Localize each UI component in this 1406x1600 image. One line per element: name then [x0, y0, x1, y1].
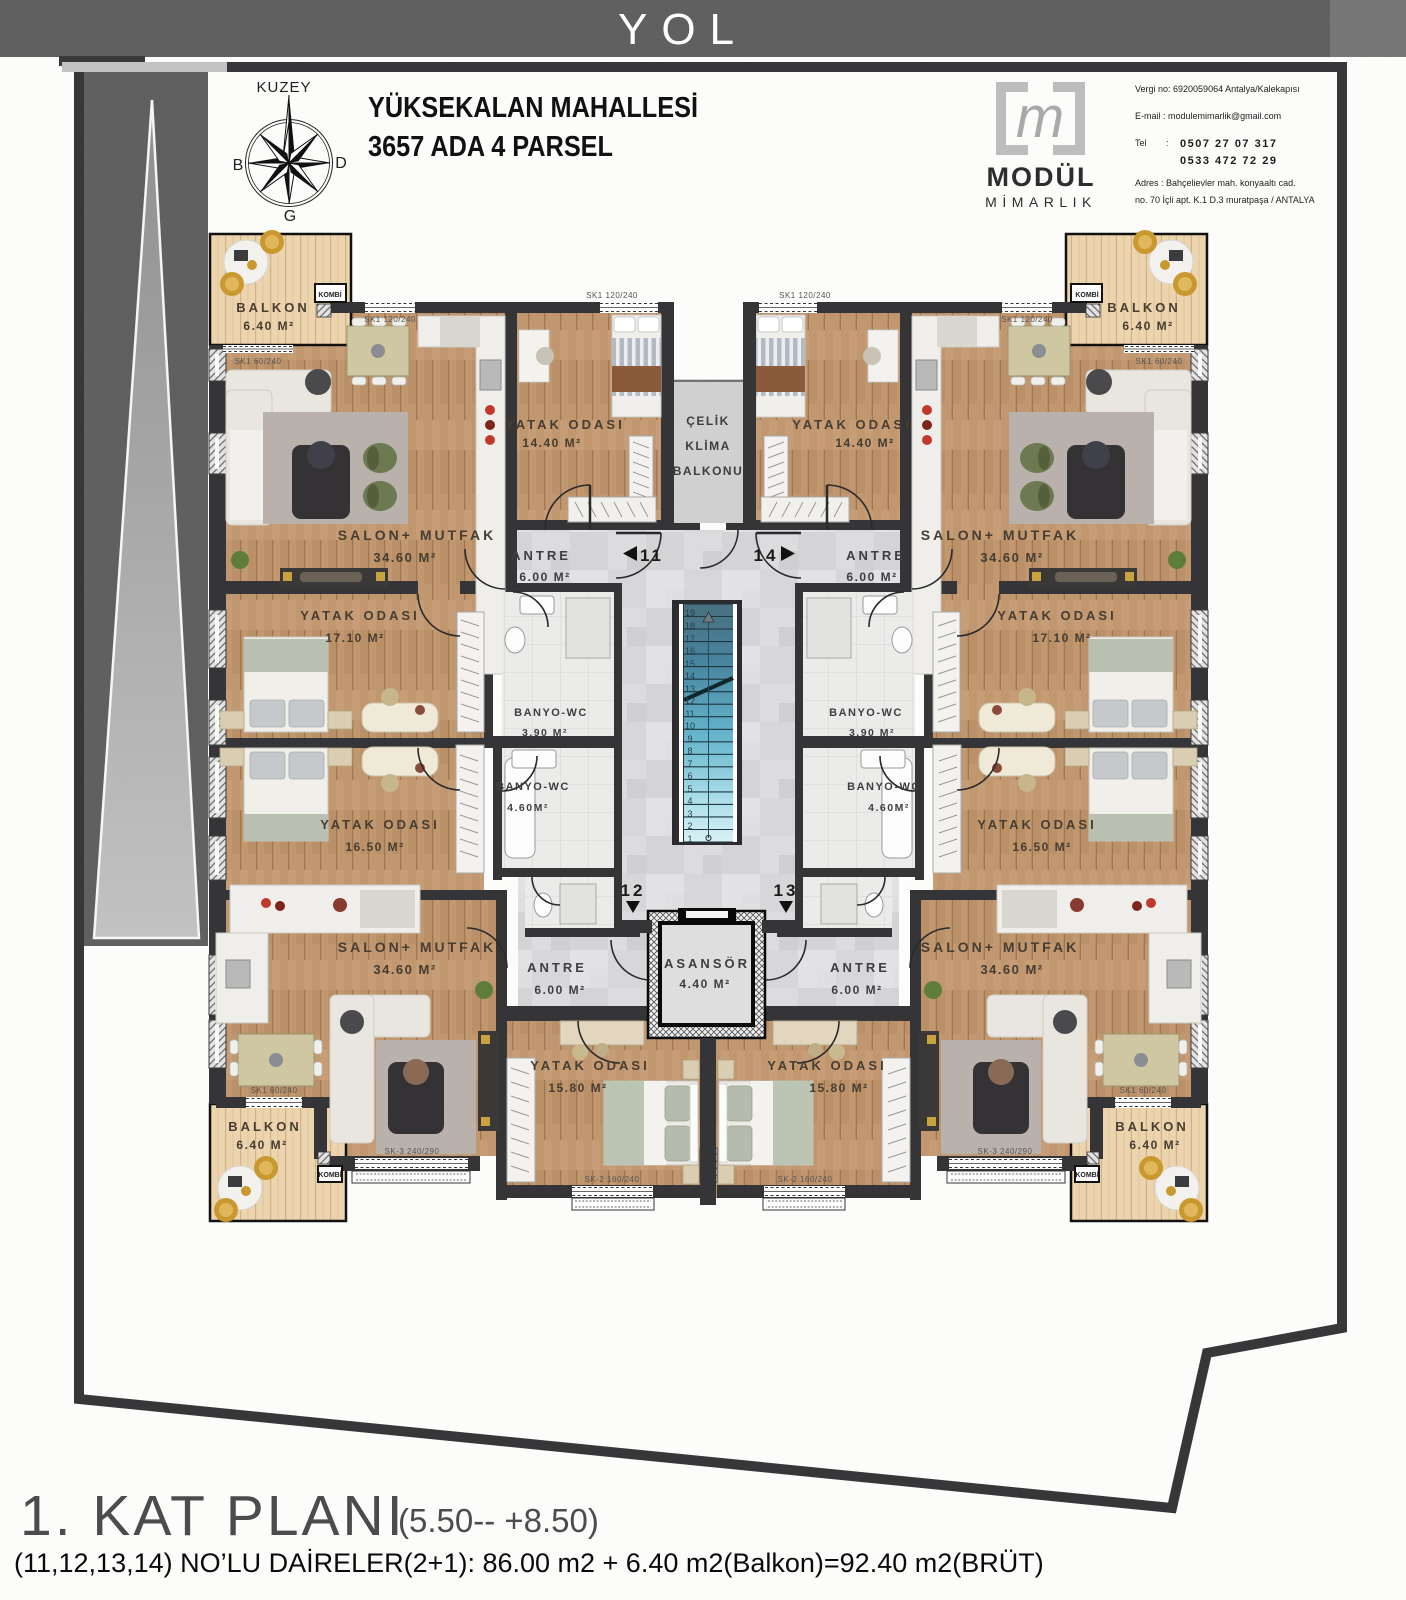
svg-text:34.60 M²: 34.60 M² [373, 962, 436, 977]
svg-text:2: 2 [687, 821, 692, 831]
svg-text:14.40 M²: 14.40 M² [835, 436, 894, 450]
svg-text:9: 9 [687, 734, 692, 744]
svg-text:ANTRE: ANTRE [527, 960, 587, 975]
svg-text:3: 3 [687, 809, 692, 819]
svg-text:KOMBİ: KOMBİ [1075, 1171, 1098, 1179]
svg-text:BANYO-WC: BANYO-WC [514, 707, 588, 719]
svg-text:16: 16 [685, 646, 695, 656]
svg-text:4.60M²: 4.60M² [507, 802, 549, 814]
svg-text:ASANSÖR: ASANSÖR [664, 956, 750, 971]
svg-text:14: 14 [754, 546, 779, 565]
svg-text:BALKON: BALKON [228, 1119, 302, 1134]
svg-text:16.50 M²: 16.50 M² [345, 840, 404, 854]
svg-text:3657 ADA 4 PARSEL: 3657 ADA 4 PARSEL [368, 131, 613, 163]
svg-text:BALKON: BALKON [1115, 1119, 1189, 1134]
svg-text:SALON+ MUTFAK: SALON+ MUTFAK [338, 527, 496, 543]
svg-text:MODÜL: MODÜL [987, 162, 1096, 192]
svg-text:(5.50-- +8.50): (5.50-- +8.50) [398, 1502, 599, 1539]
svg-text:ÇELİK: ÇELİK [686, 413, 730, 428]
svg-text:YATAK ODASI: YATAK ODASI [300, 608, 419, 623]
svg-text:34.60 M²: 34.60 M² [980, 962, 1043, 977]
svg-text:ANTRE: ANTRE [830, 960, 890, 975]
svg-text:SK-2 160/240: SK-2 160/240 [778, 1175, 833, 1184]
svg-text:SK1 60/240: SK1 60/240 [235, 357, 282, 366]
svg-text:7: 7 [687, 759, 692, 769]
svg-text:4.60M²: 4.60M² [868, 802, 910, 814]
svg-text:17.10 M²: 17.10 M² [1032, 631, 1091, 645]
svg-text:SK1 120/240: SK1 120/240 [1001, 315, 1053, 324]
svg-text:10: 10 [685, 721, 695, 731]
svg-text:G: G [284, 208, 296, 225]
svg-text:SK-3 240/290: SK-3 240/290 [978, 1147, 1033, 1156]
svg-text:YATAK ODASI: YATAK ODASI [505, 417, 624, 432]
svg-text:13: 13 [774, 881, 799, 900]
svg-text:KUZEY: KUZEY [256, 79, 311, 96]
svg-text:SK1 120/240: SK1 120/240 [779, 291, 831, 300]
svg-text:SALON+ MUTFAK: SALON+ MUTFAK [338, 939, 496, 955]
svg-text:SALON+ MUTFAK: SALON+ MUTFAK [921, 939, 1079, 955]
svg-text:KOMBİ: KOMBİ [318, 1171, 341, 1179]
svg-text:4: 4 [687, 796, 692, 806]
svg-text:6.40 M²: 6.40 M² [236, 1138, 287, 1152]
svg-text:SK1 60/240: SK1 60/240 [251, 1086, 298, 1095]
svg-text:1: 1 [687, 834, 692, 844]
svg-text:YÜKSEKALAN MAHALLESİ: YÜKSEKALAN MAHALLESİ [368, 91, 698, 124]
svg-text:KOMBİ: KOMBİ [318, 291, 341, 299]
svg-text:15.80 M²: 15.80 M² [548, 1081, 607, 1095]
svg-text:SK1 120/240: SK1 120/240 [586, 291, 638, 300]
svg-text:18: 18 [685, 621, 695, 631]
svg-text:BALKON: BALKON [236, 300, 310, 315]
svg-text:YATAK ODASI: YATAK ODASI [320, 817, 439, 832]
svg-text:3.90 M²: 3.90 M² [522, 727, 568, 739]
svg-text:BALKONU: BALKONU [673, 464, 744, 478]
svg-text:m: m [1016, 85, 1064, 150]
svg-text:17.10 M²: 17.10 M² [325, 631, 384, 645]
svg-text:19: 19 [685, 608, 695, 618]
svg-text:YATAK ODASI: YATAK ODASI [767, 1058, 886, 1073]
svg-text:Adres : Bahçelievler mah. k: Adres : Bahçelievler mah. konyaaltı cad. [1135, 178, 1296, 188]
svg-text:14.40 M²: 14.40 M² [522, 436, 581, 450]
svg-text:6.40 M²: 6.40 M² [1129, 1138, 1180, 1152]
svg-text:BANYO-WC: BANYO-WC [496, 781, 570, 793]
svg-text:BANYO-WC: BANYO-WC [829, 707, 903, 719]
svg-text:34.60 M²: 34.60 M² [373, 550, 436, 565]
svg-text:KOMBİ: KOMBİ [1075, 291, 1098, 299]
svg-text:SK-3 240/290: SK-3 240/290 [385, 1147, 440, 1156]
svg-text:4.40 M²: 4.40 M² [679, 977, 730, 991]
svg-text:1. KAT PLANI: 1. KAT PLANI [20, 1484, 406, 1548]
svg-text:17: 17 [685, 634, 695, 644]
svg-text:SK1 60/240: SK1 60/240 [1136, 357, 1183, 366]
svg-text:YATAK ODASI: YATAK ODASI [977, 817, 1096, 832]
svg-text:SALON+ MUTFAK: SALON+ MUTFAK [921, 527, 1079, 543]
svg-text:6.00 M²: 6.00 M² [534, 983, 585, 997]
svg-text:15.80 M²: 15.80 M² [809, 1081, 868, 1095]
svg-text:YATAK ODASI: YATAK ODASI [997, 608, 1116, 623]
svg-text:6.40 M²: 6.40 M² [1122, 319, 1173, 333]
svg-text:3.90 M²: 3.90 M² [849, 727, 895, 739]
svg-text:34.60 M²: 34.60 M² [980, 550, 1043, 565]
svg-text:6.40 M²: 6.40 M² [243, 319, 294, 333]
svg-text:12: 12 [685, 696, 695, 706]
svg-text:16.50 M²: 16.50 M² [1012, 840, 1071, 854]
svg-text:6.00 M²: 6.00 M² [846, 570, 897, 584]
svg-text:SK-2 160/240: SK-2 160/240 [585, 1175, 640, 1184]
svg-text:11: 11 [685, 709, 694, 719]
svg-text:Vergi no: 6920059064 Antalya/: Vergi no: 6920059064 Antalya/Kalekapısı [1135, 84, 1300, 94]
svg-text:YOL: YOL [618, 5, 748, 54]
svg-text:YATAK ODASI: YATAK ODASI [530, 1058, 649, 1073]
svg-text:D: D [335, 155, 347, 172]
svg-text:BANYO-WC: BANYO-WC [847, 781, 921, 793]
svg-text:ANTRE: ANTRE [846, 548, 906, 563]
svg-text:(11,12,13,14) NO’LU DAİRELER(2: (11,12,13,14) NO’LU DAİRELER(2+1): 86.00… [14, 1547, 1044, 1578]
svg-text:14: 14 [685, 671, 695, 681]
svg-text:MİMARLIK: MİMARLIK [985, 193, 1097, 210]
svg-text:6.00 M²: 6.00 M² [831, 983, 882, 997]
svg-text:0507 27 07 317: 0507 27 07 317 [1180, 138, 1277, 150]
svg-text:6.00 M²: 6.00 M² [519, 570, 570, 584]
svg-text:15: 15 [685, 659, 695, 669]
svg-text:SK1 60/240: SK1 60/240 [1120, 1086, 1167, 1095]
svg-text:E-mail : modulemimarlik@gma: E-mail : modulemimarlik@gmail.com [1135, 111, 1281, 121]
svg-text:12: 12 [621, 881, 646, 900]
svg-text:SK1 120/240: SK1 120/240 [364, 315, 416, 324]
svg-text:KLİMA: KLİMA [685, 438, 731, 453]
svg-text:11: 11 [640, 546, 664, 565]
svg-text:ANTRE: ANTRE [511, 548, 571, 563]
svg-text:YATAK ODASI: YATAK ODASI [792, 417, 911, 432]
svg-text::: : [1166, 138, 1169, 148]
svg-text:BALKON: BALKON [1107, 300, 1181, 315]
svg-text:6: 6 [687, 771, 692, 781]
svg-text:Tel: Tel [1135, 138, 1147, 148]
svg-text:13: 13 [685, 684, 695, 694]
svg-text:8: 8 [687, 746, 692, 756]
svg-text:B: B [233, 157, 244, 174]
svg-text:0533 472 72 29: 0533 472 72 29 [1180, 155, 1277, 167]
svg-text:no. 70 İçli apt. K.1 D.3 mur: no. 70 İçli apt. K.1 D.3 muratpaşa / ANT… [1135, 195, 1315, 205]
svg-text:5: 5 [687, 784, 692, 794]
